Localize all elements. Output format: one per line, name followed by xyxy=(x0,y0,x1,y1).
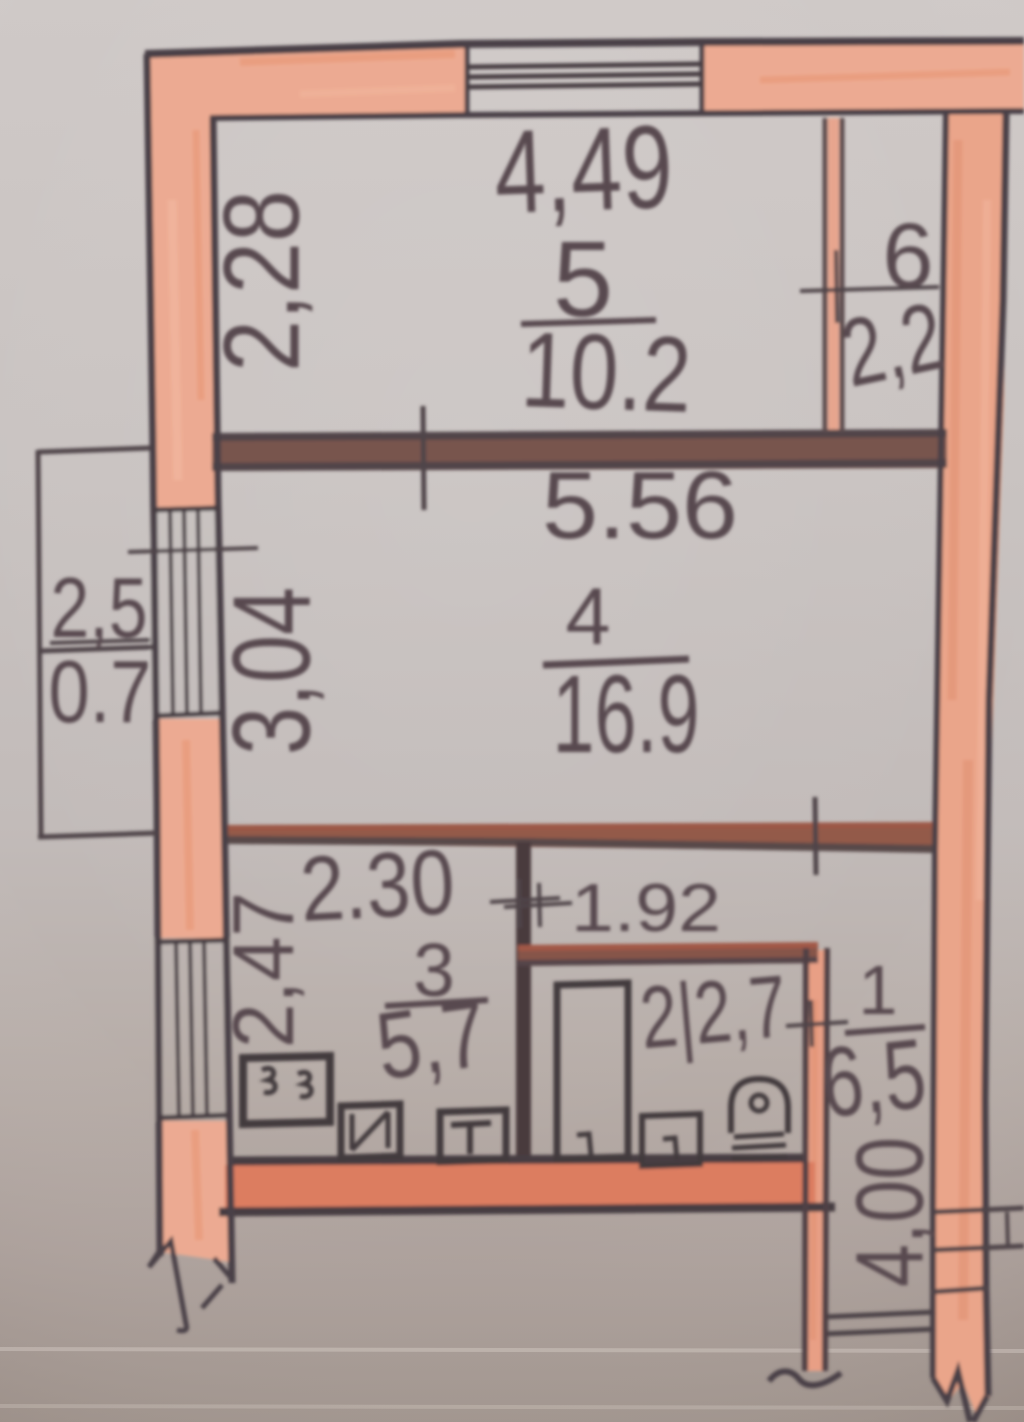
svg-text:4,00: 4,00 xyxy=(837,1137,944,1287)
svg-text:0.7: 0.7 xyxy=(49,642,152,741)
svg-text:16.9: 16.9 xyxy=(553,653,700,776)
svg-text:4: 4 xyxy=(565,572,610,662)
svg-text:3,04: 3,04 xyxy=(211,587,334,755)
svg-text:1.92: 1.92 xyxy=(571,870,721,946)
svg-text:2,47: 2,47 xyxy=(216,892,312,1048)
svg-text:5,7: 5,7 xyxy=(370,980,493,1100)
svg-text:6,5: 6,5 xyxy=(816,1017,931,1138)
svg-text:1: 1 xyxy=(859,951,898,1029)
svg-text:2,28: 2,28 xyxy=(201,190,322,372)
svg-text:2|2,7: 2|2,7 xyxy=(636,956,790,1067)
svg-text:2.30: 2.30 xyxy=(298,831,457,941)
svg-text:10.2: 10.2 xyxy=(519,309,693,435)
svg-text:5.56: 5.56 xyxy=(542,452,738,559)
